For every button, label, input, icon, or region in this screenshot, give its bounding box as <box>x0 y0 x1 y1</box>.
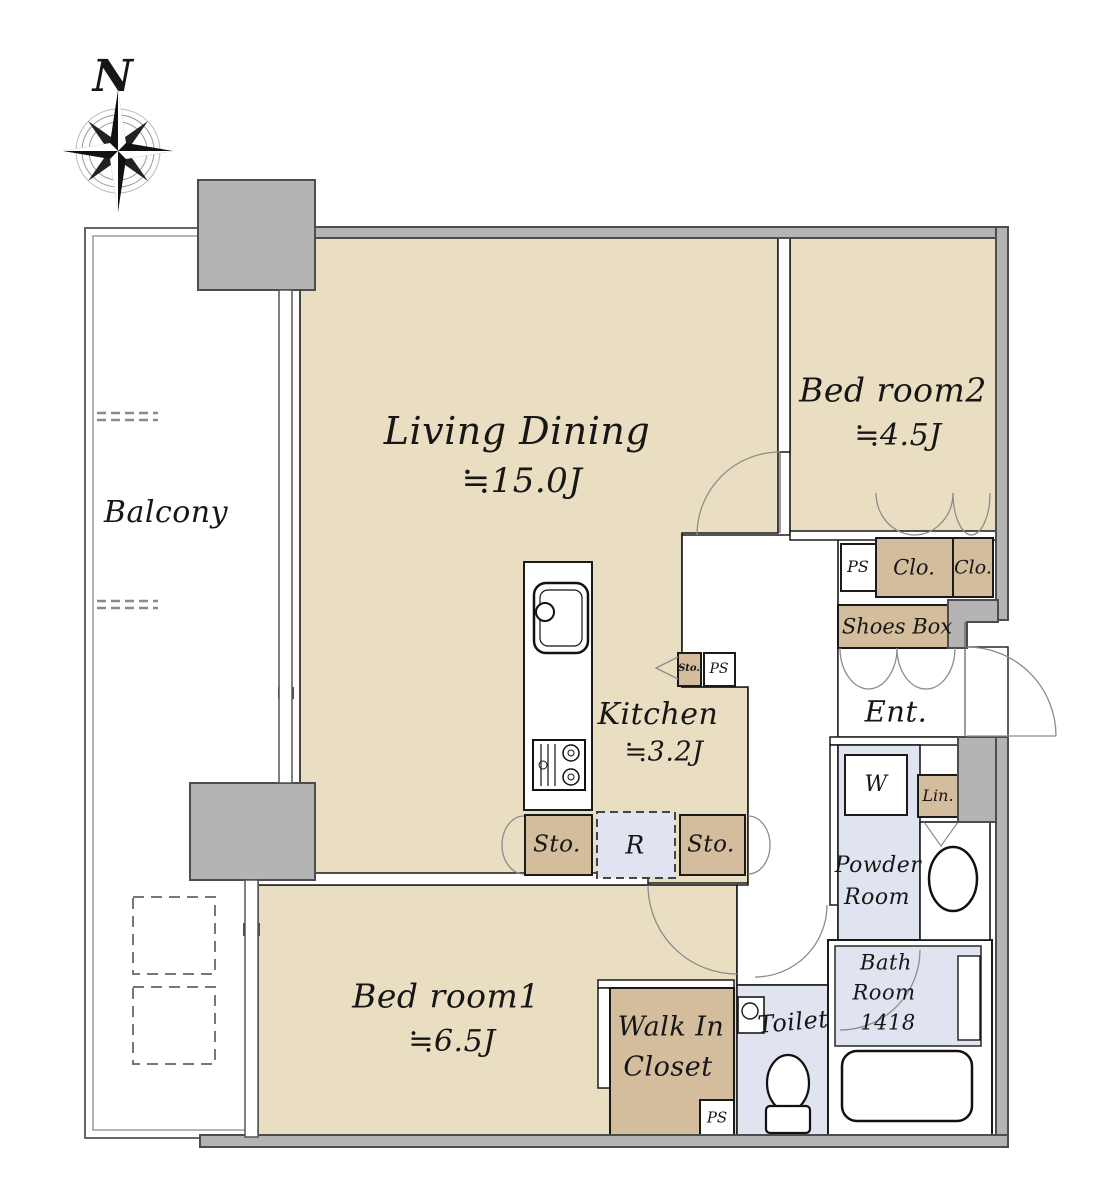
bedroom1-size: ≒6.5J <box>408 1027 495 1057</box>
wall-powder-left <box>830 745 838 905</box>
wall-living-bedroom2 <box>778 238 790 452</box>
wall-right-lower <box>996 737 1008 1147</box>
closet1-label: Clo. <box>893 558 935 579</box>
bathtub-icon <box>842 1051 972 1121</box>
pillar-middle <box>190 783 315 880</box>
wall-bottom <box>200 1135 1008 1147</box>
entrance-label: Ent. <box>865 698 928 727</box>
wall-chunk-entry-bottom <box>958 737 996 822</box>
floor-plan-drawing <box>0 0 1105 1200</box>
refrigerator-label: R <box>625 833 644 858</box>
ps-label-1: PS <box>847 559 869 575</box>
wall-wic-top <box>598 980 734 988</box>
kitchen-sink-icon <box>534 583 588 653</box>
living-dining-label: Living Dining <box>384 412 650 450</box>
pillar-top <box>198 180 315 290</box>
toilet-label: Toilet <box>757 1007 830 1037</box>
wall-powder-top <box>830 737 960 745</box>
stove-icon <box>533 740 585 790</box>
bath-room-label-line2: Room <box>852 983 915 1004</box>
walk-in-closet-label-line2: Closet <box>623 1054 712 1081</box>
storage-right-label: Sto. <box>687 834 735 857</box>
wall-right-upper <box>996 227 1008 620</box>
shoes-box-label: Shoes Box <box>842 617 952 638</box>
kitchen-counter <box>524 562 592 810</box>
bath-counter <box>958 956 980 1040</box>
window-living-balcony <box>279 290 292 783</box>
wall-chunk-entry-top <box>948 600 998 648</box>
kitchen-label: Kitchen <box>598 700 719 730</box>
kitchen-size: ≒3.2J <box>625 739 704 766</box>
wall-top <box>300 227 1008 238</box>
bedroom2-size: ≒4.5J <box>854 421 941 451</box>
bedroom1-label: Bed room1 <box>352 980 540 1013</box>
balcony-label: Balcony <box>104 498 228 528</box>
bath-room-label-line1: Bath <box>860 953 912 974</box>
closet2-label: Clo. <box>954 559 992 578</box>
compass-north-label: N <box>93 55 134 99</box>
window-bedroom1-balcony <box>245 880 258 1137</box>
powder-room-label-line2: Room <box>844 887 910 909</box>
living-dining-size: ≒15.0J <box>462 464 583 498</box>
compass-rose-icon <box>63 90 173 212</box>
floor-plan: N Balcony Living Dining ≒15.0J Bed room2… <box>0 0 1105 1200</box>
storage-left-label: Sto. <box>533 834 581 857</box>
ps-label-3: PS <box>707 1111 727 1126</box>
bedroom2-label: Bed room2 <box>799 374 987 407</box>
storage-small-label: Sto. <box>678 664 700 674</box>
walk-in-closet-label-line1: Walk In <box>618 1014 725 1041</box>
washbasin-icon <box>929 847 977 911</box>
powder-room-label-line1: Powder <box>835 855 922 877</box>
bath-room-size: 1418 <box>860 1013 915 1034</box>
ps-label-2: PS <box>709 662 728 676</box>
wall-wic-left <box>598 988 610 1088</box>
linen-label: Lin. <box>922 788 953 804</box>
washer-label: W <box>864 774 887 796</box>
